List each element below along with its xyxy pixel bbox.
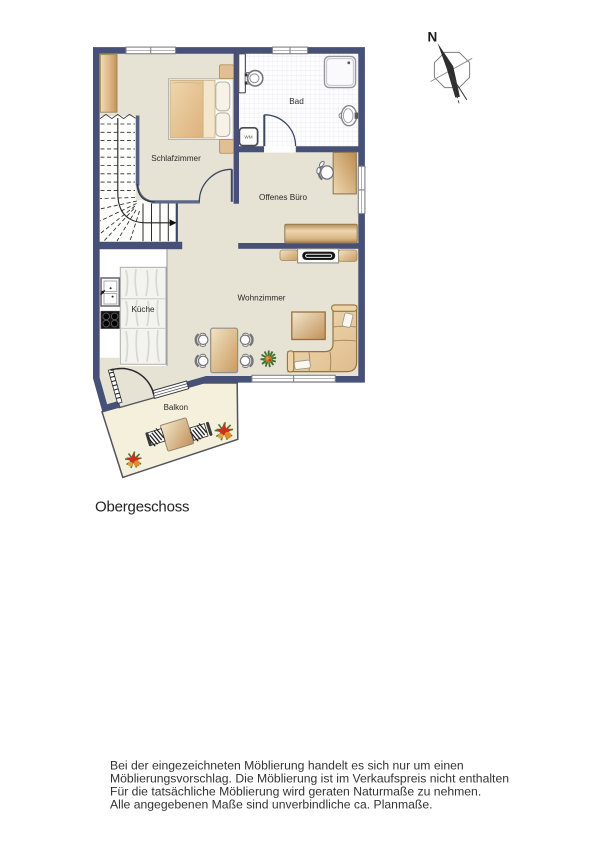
svg-text:Möblierungsvorschlag. Die Möbl: Möblierungsvorschlag. Die Möblierung ist… <box>110 771 509 785</box>
svg-text:Wohnzimmer: Wohnzimmer <box>237 294 285 303</box>
svg-text:Bei der eingezeichneten Möblie: Bei der eingezeichneten Möblierung hande… <box>110 758 464 772</box>
svg-text:Schlafzimmer: Schlafzimmer <box>151 154 201 163</box>
svg-text:N: N <box>428 30 438 45</box>
svg-text:Alle angegebenen Maße sind unv: Alle angegebenen Maße sind unverbindlich… <box>110 798 433 812</box>
svg-text:WM: WM <box>244 135 252 140</box>
svg-text:Bad: Bad <box>289 97 304 106</box>
svg-text:Balkon: Balkon <box>164 403 188 412</box>
svg-text:Offenes Büro: Offenes Büro <box>259 193 308 202</box>
svg-text:Für die tatsächliche Möblierun: Für die tatsächliche Möblierung wird ger… <box>110 785 481 799</box>
svg-text:Küche: Küche <box>131 305 155 314</box>
svg-text:Obergeschoss: Obergeschoss <box>95 498 189 515</box>
